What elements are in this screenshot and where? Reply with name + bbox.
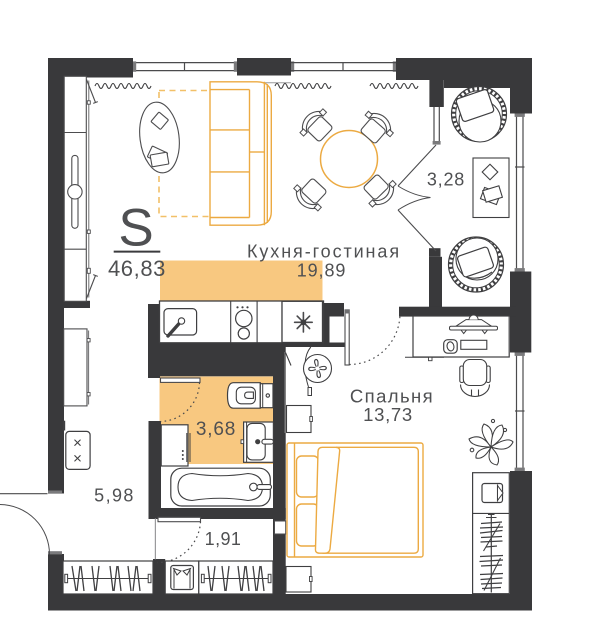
svg-text:1,91: 1,91 — [205, 529, 242, 549]
svg-text:13,73: 13,73 — [363, 404, 413, 425]
svg-text:3,68: 3,68 — [196, 419, 236, 440]
svg-text:S: S — [118, 199, 153, 258]
svg-text:46,83: 46,83 — [108, 256, 166, 281]
svg-text:19,89: 19,89 — [297, 261, 347, 281]
svg-text:Кухня-гостиная: Кухня-гостиная — [247, 242, 401, 262]
svg-text:5,98: 5,98 — [94, 486, 135, 506]
svg-text:3,28: 3,28 — [427, 170, 465, 190]
